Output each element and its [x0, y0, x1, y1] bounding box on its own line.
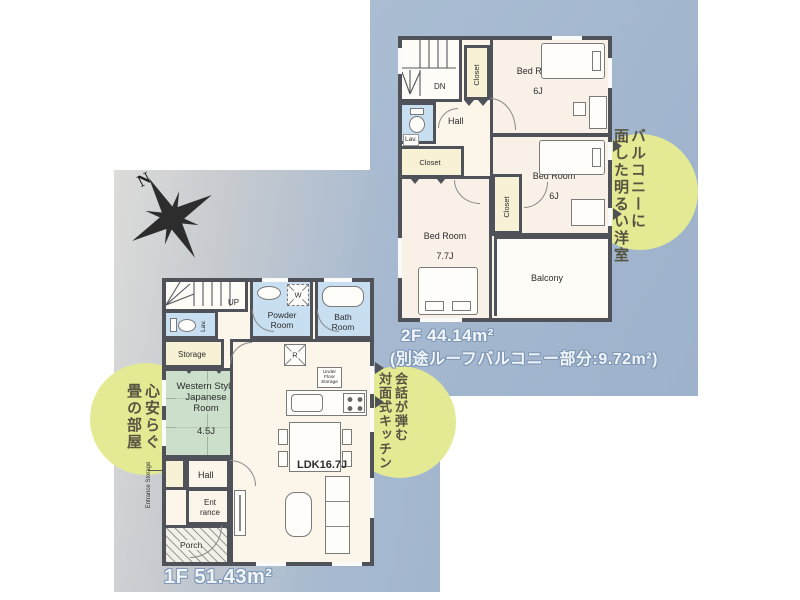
catchphrase-balcony-line1: バルコニーに — [629, 128, 646, 278]
lav-label-1f: Lav. — [199, 316, 209, 336]
storage-1f: Storage — [166, 339, 224, 368]
stairs-1f: UP — [166, 282, 248, 312]
bedroom3-size: 7.7J — [422, 251, 468, 261]
tv-board-icon — [234, 490, 246, 536]
closet-left-2f: Closet — [402, 146, 464, 178]
window-1f — [332, 562, 362, 566]
japanese-room-label: Western Style Japanese Room — [176, 381, 236, 414]
window-1f — [370, 478, 374, 518]
floor2-subtitle: (別途ルーフバルコニー部分:9.72m²) — [390, 345, 658, 369]
catchphrase-balcony: バルコニーに 面した明るい洋室 — [612, 128, 646, 278]
window-2f — [420, 318, 462, 322]
underfloor-storage-box: Under Floor Storage — [317, 367, 342, 388]
hall-label-1f: Hall — [198, 470, 214, 480]
pillow-icon — [592, 51, 601, 71]
ldk-label: LDK16.7J — [297, 460, 347, 470]
window-1f — [324, 278, 352, 282]
bedroom1-size: 6J — [515, 86, 561, 96]
chair-icon — [278, 429, 288, 445]
catchphrase-kitchen-line1: 会話が弾む — [392, 372, 408, 480]
sliding-door-icon — [410, 178, 420, 189]
bathtub-icon — [322, 286, 364, 307]
balcony-label: Balcony — [531, 273, 563, 283]
chair-icon — [278, 451, 288, 467]
kitchen-counter — [286, 390, 367, 416]
hall-1f: Hall — [186, 458, 230, 490]
ldk: R Under Floor Storage LDK16.7J — [230, 339, 370, 562]
toilet-2f: Lav. — [402, 102, 436, 144]
closet-mid-label: Closet — [502, 189, 512, 225]
closet-top-label: Closet — [472, 57, 482, 93]
stairs-2f: DN — [402, 40, 462, 102]
catchphrase-tatami: 心安らぐ 畳の部屋 — [124, 383, 160, 483]
window-2f — [398, 238, 402, 278]
window-2f — [552, 36, 582, 40]
entrance: Ent rance — [186, 488, 230, 525]
chair-icon — [342, 429, 352, 445]
stairs-up-label: UP — [228, 298, 239, 308]
chair-icon — [573, 102, 586, 116]
toilet-icon — [409, 116, 425, 133]
entrance-label: Ent rance — [196, 498, 224, 518]
coffee-table-icon — [285, 492, 312, 537]
closet-mid-2f: Closet — [492, 174, 522, 234]
entrance-storage — [166, 458, 186, 490]
closet-top-2f: Closet — [464, 45, 490, 100]
stairs-icon — [402, 40, 456, 96]
toilet-tank-icon — [170, 318, 177, 332]
washing-machine-icon: W — [287, 284, 309, 306]
desk-icon — [589, 96, 607, 129]
window-1f — [262, 278, 288, 282]
door-arc — [438, 108, 458, 128]
floorplan-1f: UP Lav. W Powder Room Bath Room Storage — [162, 278, 374, 566]
double-bed-icon — [418, 267, 478, 315]
catchphrase-tatami-line2: 畳の部屋 — [124, 383, 142, 483]
desk-icon — [571, 199, 605, 226]
window-1f — [162, 420, 166, 446]
floor1-title: 1F 51.43m² — [164, 566, 272, 589]
washer-label: W — [293, 291, 302, 300]
closet-left-label: Closet — [410, 158, 450, 168]
floor2-title: 2F 44.14m² — [401, 326, 494, 346]
sliding-door-icon — [436, 178, 446, 189]
pillow-icon — [425, 301, 444, 311]
window-2f — [398, 48, 402, 74]
toilet-1f: Lav. — [166, 310, 218, 339]
japanese-room-size: 4.5J — [176, 427, 236, 437]
kitchen-sink-icon — [291, 394, 323, 412]
toilet-tank-icon — [410, 108, 424, 115]
catchphrase-kitchen: 会話が弾む 対面式キッチン — [376, 372, 408, 480]
catchphrase-tatami-line1: 心安らぐ — [142, 383, 160, 483]
sofa-icon — [325, 476, 350, 554]
stairs-dn-label: DN — [434, 82, 446, 92]
storage-label: Storage — [174, 350, 210, 360]
pillow-icon — [452, 301, 471, 311]
window-1f — [370, 366, 374, 394]
sliding-door-icon — [464, 100, 474, 111]
sink-icon — [257, 286, 281, 300]
toilet-icon — [178, 319, 196, 332]
lav-label-2f: Lav. — [403, 134, 419, 146]
refrigerator-icon: R — [284, 344, 306, 366]
bed-icon — [541, 43, 605, 79]
underfloor-storage-label: Under Floor Storage — [319, 370, 340, 386]
catchphrase-kitchen-line2: 対面式キッチン — [376, 372, 392, 480]
sliding-door-icon — [214, 368, 224, 379]
pillow-icon — [592, 148, 601, 167]
catchphrase-balcony-line2: 面した明るい洋室 — [612, 128, 629, 278]
bed-icon — [539, 140, 605, 175]
sliding-door-icon — [184, 368, 194, 379]
sliding-door-icon — [478, 100, 488, 111]
floorplan-canvas: N DN Lav. Hall Closet Bed R — [0, 0, 800, 600]
bedroom3-name: Bed Room — [422, 231, 468, 241]
window-2f — [608, 58, 612, 88]
window-1f — [370, 408, 374, 432]
fridge-label: R — [291, 351, 298, 360]
floorplan-2f: DN Lav. Hall Closet Bed Room 6J Bed Room — [398, 36, 612, 322]
window-1f — [162, 380, 166, 406]
balcony-2f: Balcony — [494, 236, 608, 316]
stove-icon — [343, 393, 365, 413]
